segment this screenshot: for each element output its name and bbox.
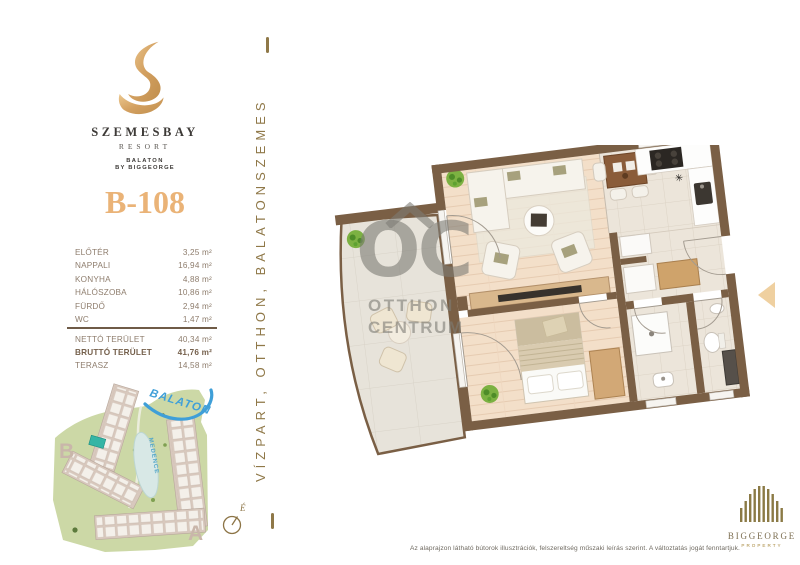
room-row: WC1,47 m² [75, 313, 212, 326]
room-label: NAPPALI [75, 259, 110, 272]
biggeorge-name: BIGGEORGE [712, 531, 800, 541]
page: SZEMESBAY RESORT BALATON BY BIGGEORGE B-… [0, 0, 800, 565]
brand-block: SZEMESBAY RESORT BALATON BY BIGGEORGE [60, 40, 230, 171]
brand-tagline-2: BY BIGGEORGE [60, 165, 230, 171]
biggeorge-sub: PROPERTY [712, 543, 800, 548]
total-area: 14,58 m² [178, 360, 212, 373]
dining-chair [592, 162, 606, 181]
banner-dash-bottom [271, 513, 274, 529]
room-row: FÜRDŐ2,94 m² [75, 300, 212, 313]
room-row: KONYHA4,88 m² [75, 273, 212, 286]
cooktop [649, 147, 683, 171]
pillow [527, 374, 554, 394]
total-row: NETTÓ TERÜLET40,34 m² [75, 334, 212, 347]
armchair [481, 240, 521, 280]
total-label: TERASZ [75, 360, 109, 373]
room-label: ELŐTÉR [75, 246, 109, 259]
room-area: 2,94 m² [183, 300, 212, 313]
entry-cabinet [657, 259, 700, 290]
room-label: HÁLÓSZOBA [75, 286, 127, 299]
room-list: ELŐTÉR3,25 m² NAPPALI16,94 m² KONYHA4,88… [75, 246, 212, 326]
total-row-gross: BRUTTÓ TERÜLET41,76 m² [75, 347, 212, 360]
freezer-symbol-icon: ✳ [674, 173, 684, 185]
room-row: ELŐTÉR3,25 m² [75, 246, 212, 259]
dining-chair [610, 188, 627, 201]
compass-icon: É [216, 498, 256, 540]
room-row: HÁLÓSZOBA10,86 m² [75, 286, 212, 299]
banner-dash-top [266, 37, 269, 53]
total-area: 41,76 m² [178, 347, 212, 360]
dining-chair [632, 185, 649, 198]
brand-name: SZEMESBAY [60, 125, 230, 140]
room-label: WC [75, 313, 89, 326]
room-area: 1,47 m² [183, 313, 212, 326]
total-label: NETTÓ TERÜLET [75, 334, 145, 347]
swan-logo-icon [102, 40, 188, 116]
block-a-label: A [188, 522, 203, 545]
list-divider [67, 327, 217, 329]
room-area: 16,94 m² [178, 259, 212, 272]
floor-plan: ✳ [318, 145, 798, 475]
room-area: 10,86 m² [178, 286, 212, 299]
compass-north-label: É [239, 503, 246, 513]
block-b-label: B [59, 440, 74, 463]
side-banner-text: VÍZPART, OTTHON, BALATONSZEMES [253, 72, 279, 508]
room-area: 4,88 m² [183, 273, 212, 286]
room-label: FÜRDŐ [75, 300, 105, 313]
totals-list: NETTÓ TERÜLET40,34 m² BRUTTÓ TERÜLET41,7… [75, 334, 212, 372]
pillow [557, 371, 584, 391]
kitchen-sink [694, 181, 714, 205]
total-label: BRUTTÓ TERÜLET [75, 347, 152, 360]
unit-id: B-108 [60, 184, 230, 221]
brand-subtitle: RESORT [60, 142, 230, 151]
wardrobe [589, 348, 625, 399]
biggeorge-logo: BIGGEORGE PROPERTY [712, 484, 800, 548]
total-row: TERASZ14,58 m² [75, 360, 212, 373]
room-label: KONYHA [75, 273, 111, 286]
total-area: 40,34 m² [178, 334, 212, 347]
room-area: 3,25 m² [183, 246, 212, 259]
room-row: NAPPALI16,94 m² [75, 259, 212, 272]
biggeorge-bars-icon [737, 484, 787, 524]
bed [515, 313, 589, 404]
site-map: MEDENCE BALATON B A [45, 380, 240, 562]
brand-tagline-1: BALATON [60, 158, 230, 164]
